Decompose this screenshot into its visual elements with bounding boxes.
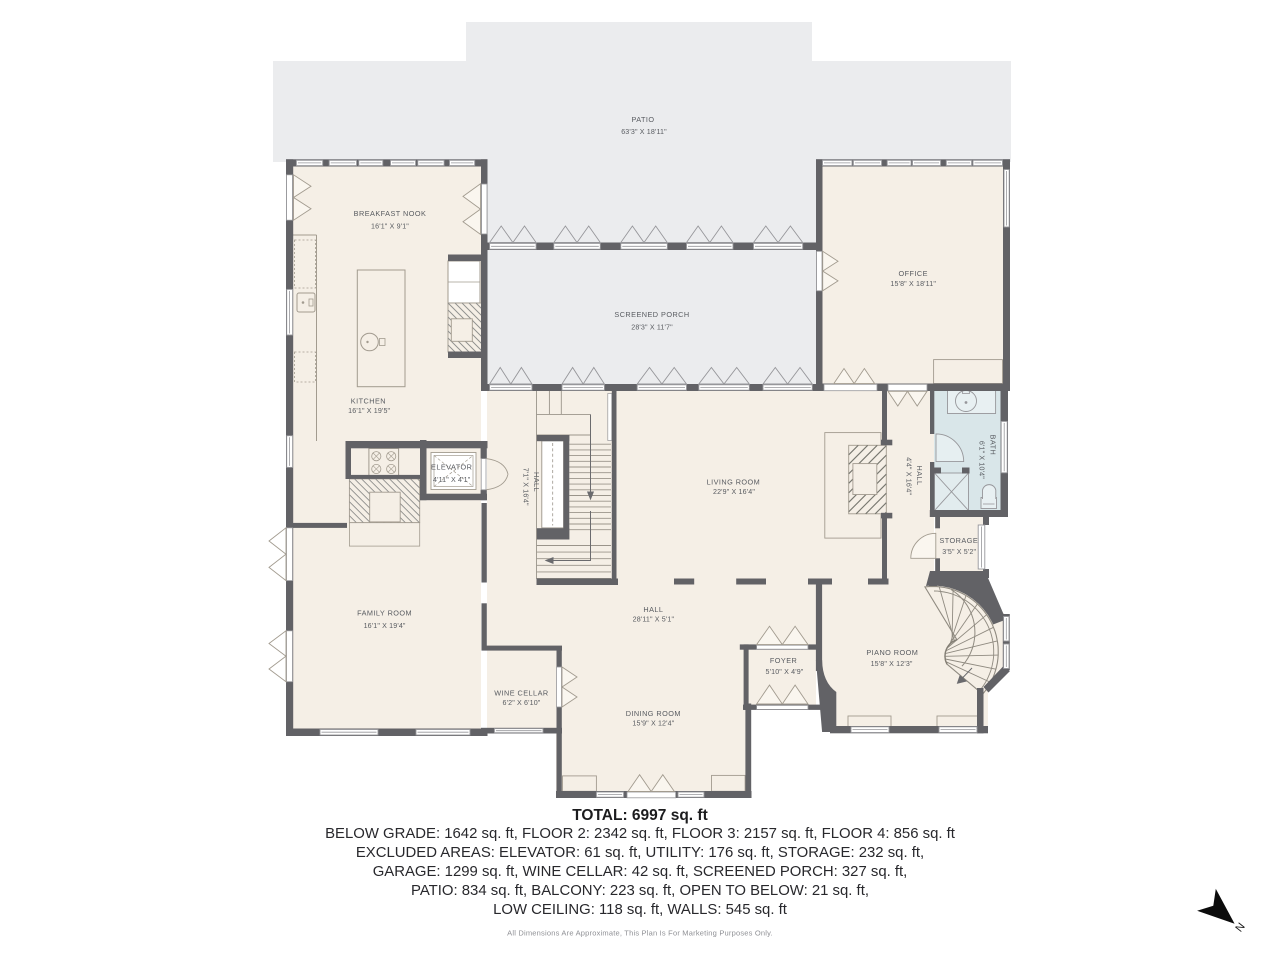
svg-text:6'1" X 10'4": 6'1" X 10'4" — [978, 441, 986, 479]
svg-text:LOW CEILING: 118 sq. ft, WALLS: LOW CEILING: 118 sq. ft, WALLS: 545 sq. … — [493, 902, 788, 918]
svg-text:STORAGE: STORAGE — [939, 536, 978, 545]
svg-text:PATIO: PATIO — [631, 115, 654, 124]
svg-text:SCREENED PORCH: SCREENED PORCH — [614, 310, 689, 319]
svg-text:4'11" X 4'1": 4'11" X 4'1" — [433, 476, 471, 484]
svg-text:15'9" X 12'4": 15'9" X 12'4" — [632, 720, 674, 728]
svg-text:63'3" X 18'11": 63'3" X 18'11" — [621, 128, 667, 136]
svg-text:4'4" X 16'4": 4'4" X 16'4" — [905, 457, 913, 495]
svg-text:FAMILY ROOM: FAMILY ROOM — [357, 609, 412, 618]
svg-text:16'1" X 19'5": 16'1" X 19'5" — [348, 407, 390, 415]
svg-text:15'8" X 18'11": 15'8" X 18'11" — [890, 280, 936, 288]
svg-text:7'1" X 16'4": 7'1" X 16'4" — [521, 468, 529, 506]
svg-text:BREAKFAST NOOK: BREAKFAST NOOK — [354, 209, 427, 218]
svg-text:BATH: BATH — [989, 435, 998, 456]
svg-text:KITCHEN: KITCHEN — [351, 397, 386, 406]
svg-text:BELOW GRADE: 1642 sq. ft, FLOO: BELOW GRADE: 1642 sq. ft, FLOOR 2: 2342 … — [325, 826, 956, 842]
svg-text:GARAGE: 1299 sq. ft, WINE CELL: GARAGE: 1299 sq. ft, WINE CELLAR: 42 sq.… — [373, 864, 908, 880]
svg-text:TOTAL: 6997 sq. ft: TOTAL: 6997 sq. ft — [572, 807, 708, 824]
svg-text:28'11" X 5'1": 28'11" X 5'1" — [633, 616, 675, 624]
svg-text:PIANO ROOM: PIANO ROOM — [866, 648, 918, 657]
svg-text:5'10" X 4'9": 5'10" X 4'9" — [766, 668, 804, 676]
svg-text:EXCLUDED AREAS: ELEVATOR: 61 s: EXCLUDED AREAS: ELEVATOR: 61 sq. ft, UTI… — [356, 845, 924, 861]
svg-text:HALL: HALL — [643, 605, 663, 614]
svg-text:DINING ROOM: DINING ROOM — [626, 709, 681, 718]
svg-text:ELEVATOR: ELEVATOR — [431, 463, 472, 472]
svg-text:16'1" X 9'1": 16'1" X 9'1" — [371, 223, 409, 231]
svg-text:PATIO: 834 sq. ft, BALCONY: 22: PATIO: 834 sq. ft, BALCONY: 223 sq. ft, … — [411, 883, 869, 899]
svg-text:16'1" X 19'4": 16'1" X 19'4" — [364, 622, 406, 630]
svg-text:HALL: HALL — [532, 472, 541, 492]
svg-text:HALL: HALL — [915, 465, 924, 485]
svg-text:6'2" X 6'10": 6'2" X 6'10" — [503, 699, 541, 707]
svg-text:22'9" X 16'4": 22'9" X 16'4" — [713, 488, 755, 496]
svg-text:28'3" X 11'7": 28'3" X 11'7" — [631, 324, 673, 332]
svg-text:All Dimensions Are Approximate: All Dimensions Are Approximate, This Pla… — [507, 929, 773, 938]
svg-text:FOYER: FOYER — [770, 656, 797, 665]
svg-text:OFFICE: OFFICE — [898, 269, 927, 278]
svg-text:LIVING ROOM: LIVING ROOM — [707, 478, 761, 487]
svg-text:3'5" X 5'2": 3'5" X 5'2" — [942, 548, 976, 556]
svg-text:WINE CELLAR: WINE CELLAR — [494, 689, 548, 698]
svg-text:15'8" X 12'3": 15'8" X 12'3" — [871, 660, 913, 668]
